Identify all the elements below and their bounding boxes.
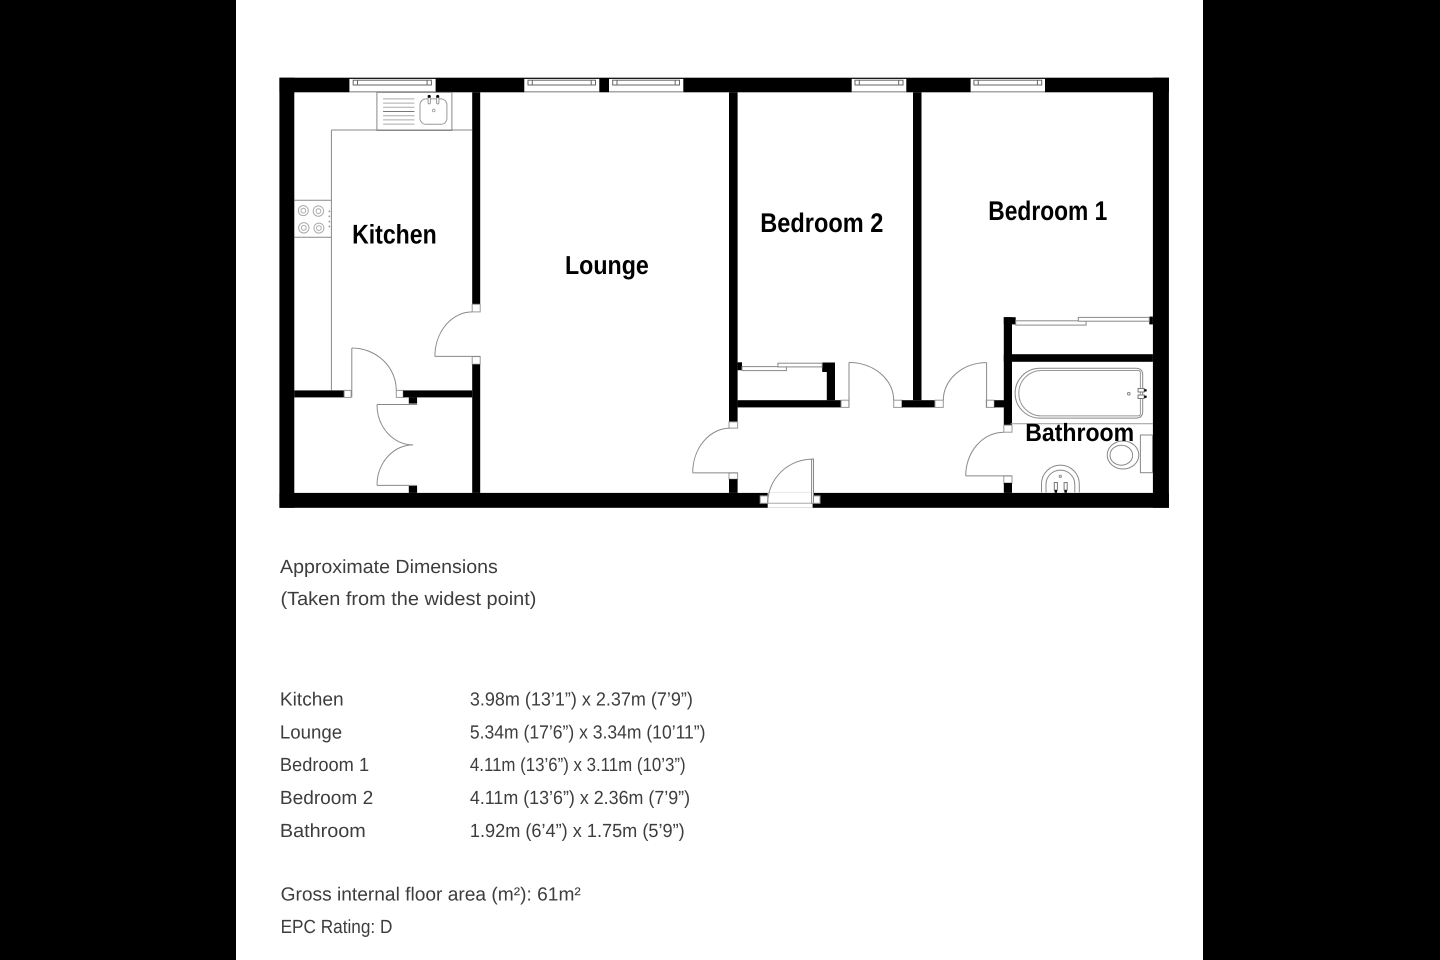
svg-text:5.34m (17’6”) x 3.34m (10’11”): 5.34m (17’6”) x 3.34m (10’11”) <box>470 723 706 744</box>
svg-text:Bathroom: Bathroom <box>1025 419 1134 447</box>
svg-text:EPC Rating: D: EPC Rating: D <box>281 917 393 938</box>
svg-text:Approximate Dimensions: Approximate Dimensions <box>280 557 498 578</box>
svg-text:Bedroom 2: Bedroom 2 <box>760 208 883 238</box>
svg-text:Lounge: Lounge <box>280 723 342 744</box>
svg-text:Gross internal floor area (m²): Gross internal floor area (m²): 61m² <box>281 885 581 906</box>
svg-text:Kitchen: Kitchen <box>352 220 437 250</box>
svg-text:Kitchen: Kitchen <box>280 690 344 711</box>
svg-text:Bathroom: Bathroom <box>280 821 366 842</box>
svg-text:3.98m (13’1”) x 2.37m (7’9”): 3.98m (13’1”) x 2.37m (7’9”) <box>470 690 693 711</box>
svg-text:Bedroom 1: Bedroom 1 <box>280 755 369 776</box>
svg-text:1.92m (6’4”) x 1.75m (5’9”): 1.92m (6’4”) x 1.75m (5’9”) <box>470 821 685 842</box>
svg-text:(Taken from the widest point): (Taken from the widest point) <box>281 589 537 610</box>
svg-text:Lounge: Lounge <box>565 250 649 280</box>
svg-text:Bedroom 2: Bedroom 2 <box>280 788 373 809</box>
svg-text:4.11m (13’6”) x 3.11m (10’3”): 4.11m (13’6”) x 3.11m (10’3”) <box>470 755 686 776</box>
svg-text:Bedroom 1: Bedroom 1 <box>988 196 1107 226</box>
svg-text:4.11m (13’6”) x 2.36m (7’9”): 4.11m (13’6”) x 2.36m (7’9”) <box>470 788 690 809</box>
